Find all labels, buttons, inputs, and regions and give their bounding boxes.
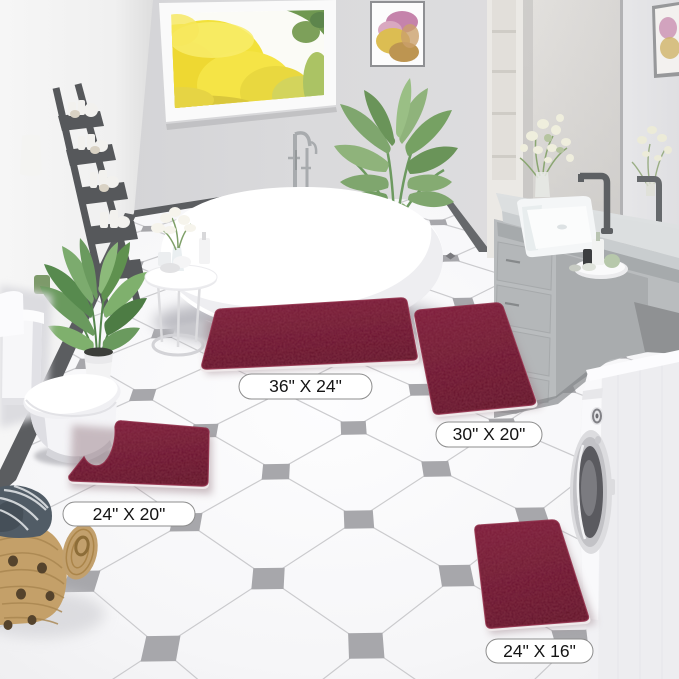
svg-text:36" X 24": 36" X 24" bbox=[269, 376, 342, 396]
svg-text:30" X 20": 30" X 20" bbox=[453, 424, 526, 444]
svg-text:24" X 20": 24" X 20" bbox=[93, 504, 166, 524]
svg-text:24" X 16": 24" X 16" bbox=[503, 641, 576, 661]
